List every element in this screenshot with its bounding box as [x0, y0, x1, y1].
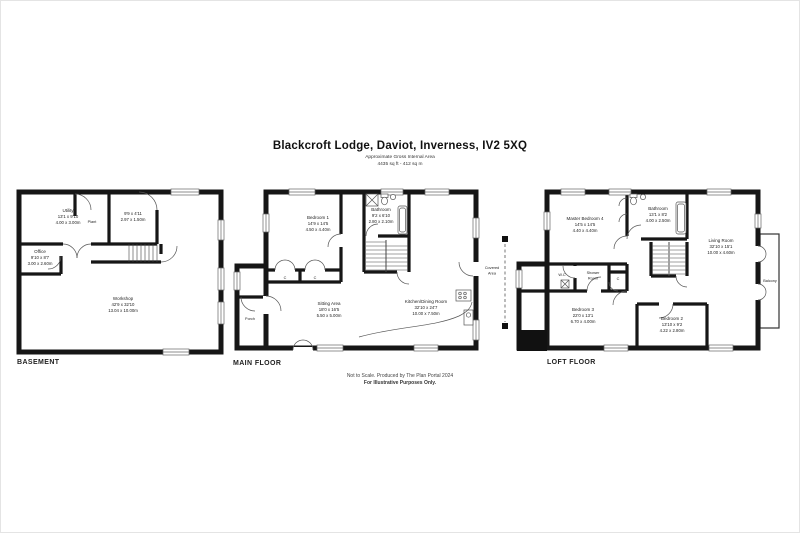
room-name: Kitchen/Dining Room [405, 299, 448, 304]
cupboard-label: C [284, 276, 287, 280]
room-dim-imperial: 9'9 x 4'11 [124, 211, 142, 216]
room-name: Bedroom 2 [661, 316, 684, 321]
cupboard-label: C [314, 276, 317, 280]
room-dim-metric: 4.22 x 2.80m [660, 328, 685, 333]
room-dim-metric: 10.00 x 7.50m [412, 311, 440, 316]
room-name: Utility [63, 208, 75, 213]
area-text: 4435 sq ft - 412 sq m [1, 162, 799, 167]
room-dim-metric: 6.70 x 4.00m [571, 319, 596, 324]
room-name: Bathroom [371, 207, 391, 212]
room-name: Bathroom [648, 206, 668, 211]
room-name: Workshop [113, 296, 134, 301]
footer-illustrative: For Illustrative Purposes Only. [1, 380, 799, 386]
room-name: Office [34, 249, 46, 254]
hob-icon [456, 290, 471, 301]
main-floorplan: Bedroom 1 14'9 x 14'5 4.50 x 4.40m Bathr… [229, 184, 509, 376]
subtitle: Approximate Gross Internal Area [1, 155, 799, 160]
room-name: W.C [558, 273, 565, 277]
main-floor-label: MAIN FLOOR [233, 360, 281, 367]
room-dim-metric: 3.00 x 2.60m [28, 261, 53, 266]
room-dim-metric: 10.00 x 4.60m [707, 250, 735, 255]
room-name: Balcony [763, 279, 777, 283]
room-dim-imperial: 14'9 x 14'5 [308, 221, 329, 226]
room-dim-metric: 5.50 x 5.00m [317, 313, 342, 318]
room-name: Bedroom 3 [572, 307, 595, 312]
room-dim-metric: 13.04 x 10.00m [108, 308, 138, 313]
room-dim-metric: 4.00 x 3.00m [56, 220, 81, 225]
room-name: Sitting Area [317, 301, 341, 306]
loft-floorplan: Master Bedroom 4 14'5 x 14'5 4.40 x 4.40… [509, 184, 794, 376]
room-dim-imperial: 13'10 x 9'2 [662, 322, 683, 327]
loft-floor-label: LOFT FLOOR [547, 359, 596, 366]
footer-disclaimer: Not to Scale. Produced by The Plan Porta… [1, 373, 799, 379]
room-dim-imperial: 32'10 x 15'1 [710, 244, 734, 249]
room-name: Covered [485, 266, 499, 270]
loft-walls [517, 192, 758, 351]
room-name: Plant [88, 220, 98, 224]
basement-walls [19, 192, 221, 352]
page-title: Blackcroft Lodge, Daviot, Inverness, IV2… [1, 140, 799, 152]
room-dim-imperial: 32'10 x 24'7 [415, 305, 439, 310]
room-dim-imperial: 22'0 x 13'1 [573, 313, 594, 318]
room-dim-imperial: 14'5 x 14'5 [575, 222, 596, 227]
room-dim-metric: 4.00 x 2.50m [646, 218, 671, 223]
room-dim-metric: 2.80 x 2.10m [369, 219, 394, 224]
room-name: Shower [587, 271, 601, 275]
room-name: Room [588, 277, 598, 281]
room-dim-imperial: 18'0 x 16'5 [319, 307, 340, 312]
room-name: Living Room [708, 238, 733, 243]
floorplan-page: Blackcroft Lodge, Daviot, Inverness, IV2… [0, 0, 800, 533]
room-dim-imperial: 42'9 x 32'10 [112, 302, 136, 307]
room-name: Master Bedroom 4 [566, 216, 604, 221]
chimney-block [517, 330, 547, 351]
basement-floorplan: Utility 13'1 x 9'10 4.00 x 3.00m Plant 9… [11, 184, 236, 376]
basement-label: BASEMENT [17, 359, 59, 366]
room-dim-metric: 4.50 x 4.40m [306, 227, 331, 232]
room-name: Area [488, 272, 497, 276]
room-dim-metric: 4.40 x 4.40m [573, 228, 598, 233]
room-dim-metric: 2.97 x 1.50m [121, 217, 146, 222]
sink-icon [390, 194, 395, 199]
room-dim-imperial: 9'10 x 8'7 [31, 255, 50, 260]
main-walls [237, 192, 476, 348]
cupboard-label: C [617, 277, 620, 281]
room-dim-imperial: 9'2 x 6'10 [372, 213, 391, 218]
room-dim-imperial: 13'1 x 9'10 [58, 214, 79, 219]
room-dim-imperial: 13'1 x 8'2 [649, 212, 668, 217]
room-name: Porch [245, 317, 255, 321]
room-name: Bedroom 1 [307, 215, 330, 220]
sink-icon [640, 194, 645, 199]
covered-area-marks [502, 236, 508, 329]
